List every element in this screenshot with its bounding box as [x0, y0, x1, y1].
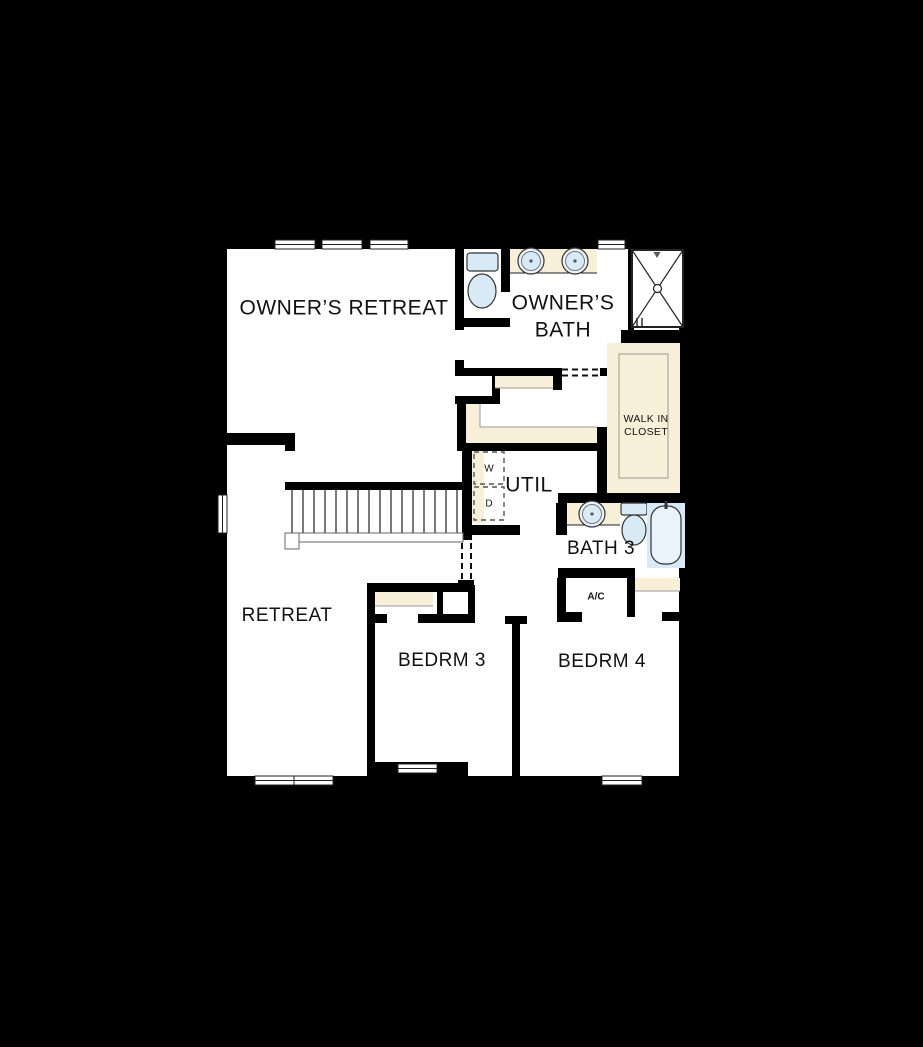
window — [275, 240, 315, 249]
bedroom3-label: BEDRM 3 — [398, 650, 486, 671]
window — [602, 776, 642, 785]
bathtub-icon — [647, 501, 685, 568]
window — [218, 495, 227, 533]
window — [398, 764, 437, 773]
washer-label: W — [484, 464, 494, 475]
window — [255, 776, 333, 785]
walk-in-closet-label-line1: WALK IN — [624, 413, 669, 425]
util-label: UTIL — [505, 474, 553, 497]
toilet-icon — [467, 253, 498, 308]
bedroom4-label: BEDRM 4 — [558, 651, 646, 672]
bedroom4-closet-shelf — [635, 578, 680, 591]
sink-icon — [518, 248, 544, 274]
shower-icon — [632, 250, 683, 327]
window — [322, 240, 362, 249]
sink-icon — [579, 501, 605, 527]
stair-landing-step — [285, 533, 299, 549]
stair-rail — [285, 533, 463, 542]
window — [370, 240, 408, 249]
bedroom3-closet-shelf — [375, 592, 433, 606]
walk-in-closet-label-line2: CLOSET — [624, 426, 668, 438]
dryer-label: D — [485, 499, 492, 510]
retreat-label: RETREAT — [242, 605, 333, 626]
owners-bath-label-line1: OWNER’S — [512, 292, 615, 315]
bath3-label: BATH 3 — [567, 538, 635, 559]
ac-closet-label: A/C — [587, 592, 604, 603]
owners-bath-label-line2: BATH — [535, 319, 591, 342]
floor-plan-canvas: W D — [0, 0, 923, 1047]
window — [598, 240, 625, 249]
sink-icon — [562, 248, 588, 274]
owners-retreat-label: OWNER’S RETREAT — [240, 297, 449, 320]
linen-shelf — [495, 376, 553, 388]
